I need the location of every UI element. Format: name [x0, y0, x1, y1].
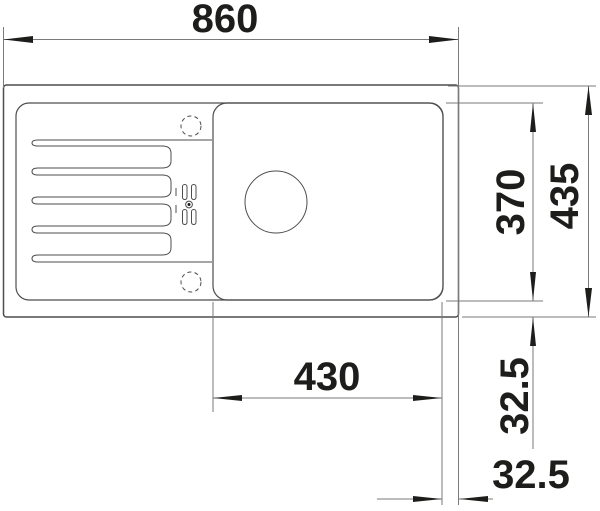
dimension-32-5-vertical: 32.5	[493, 317, 537, 449]
dimension-32-5-horizontal: 32.5	[377, 453, 570, 502]
main-bowl	[213, 103, 443, 300]
dim-label-bowl-offset-vertical: 32.5	[493, 357, 537, 435]
drainboard-drain-slots	[176, 185, 196, 225]
arrowhead-right	[429, 36, 459, 43]
dim-label-bowl-width: 430	[294, 355, 361, 399]
drain-slot	[192, 210, 197, 225]
dimension-370: 370	[446, 103, 543, 301]
arrowhead-bottom	[585, 288, 592, 317]
sink-outer-edge	[4, 85, 459, 317]
dim-label-overall-depth: 435	[543, 163, 587, 230]
arrowhead-left	[4, 36, 34, 43]
tap-hole-bottom	[181, 272, 201, 292]
dim-label-bowl-offset-horizontal: 32.5	[492, 453, 570, 497]
dim-label-overall-width: 860	[192, 0, 259, 41]
drawing-canvas: 860 435 370 430 32.5 32.5	[0, 0, 600, 511]
drainboard-grooves	[32, 140, 212, 262]
dim-label-bowl-depth: 370	[489, 169, 533, 236]
drain-screw-center	[188, 203, 191, 206]
dimension-860: 860	[4, 0, 459, 505]
arrowhead-right-pointing	[413, 496, 442, 502]
drain-slot	[183, 210, 188, 225]
sink-plan	[4, 85, 459, 317]
drain-slot	[183, 185, 188, 200]
arrowhead-right	[413, 395, 442, 401]
arrowhead-left-pointing	[459, 496, 488, 502]
arrowhead-bottom	[530, 272, 536, 301]
sink-rim	[16, 103, 443, 300]
arrowhead-top	[585, 86, 592, 115]
sink-technical-drawing: 860 435 370 430 32.5 32.5	[0, 0, 600, 511]
arrowhead-up	[530, 317, 536, 346]
tap-hole-top	[181, 116, 201, 136]
arrowhead-top	[530, 103, 536, 132]
arrowhead-left	[213, 395, 242, 401]
bowl-drain	[245, 171, 307, 233]
dimension-430: 430	[213, 302, 442, 505]
drain-slot	[192, 185, 197, 200]
